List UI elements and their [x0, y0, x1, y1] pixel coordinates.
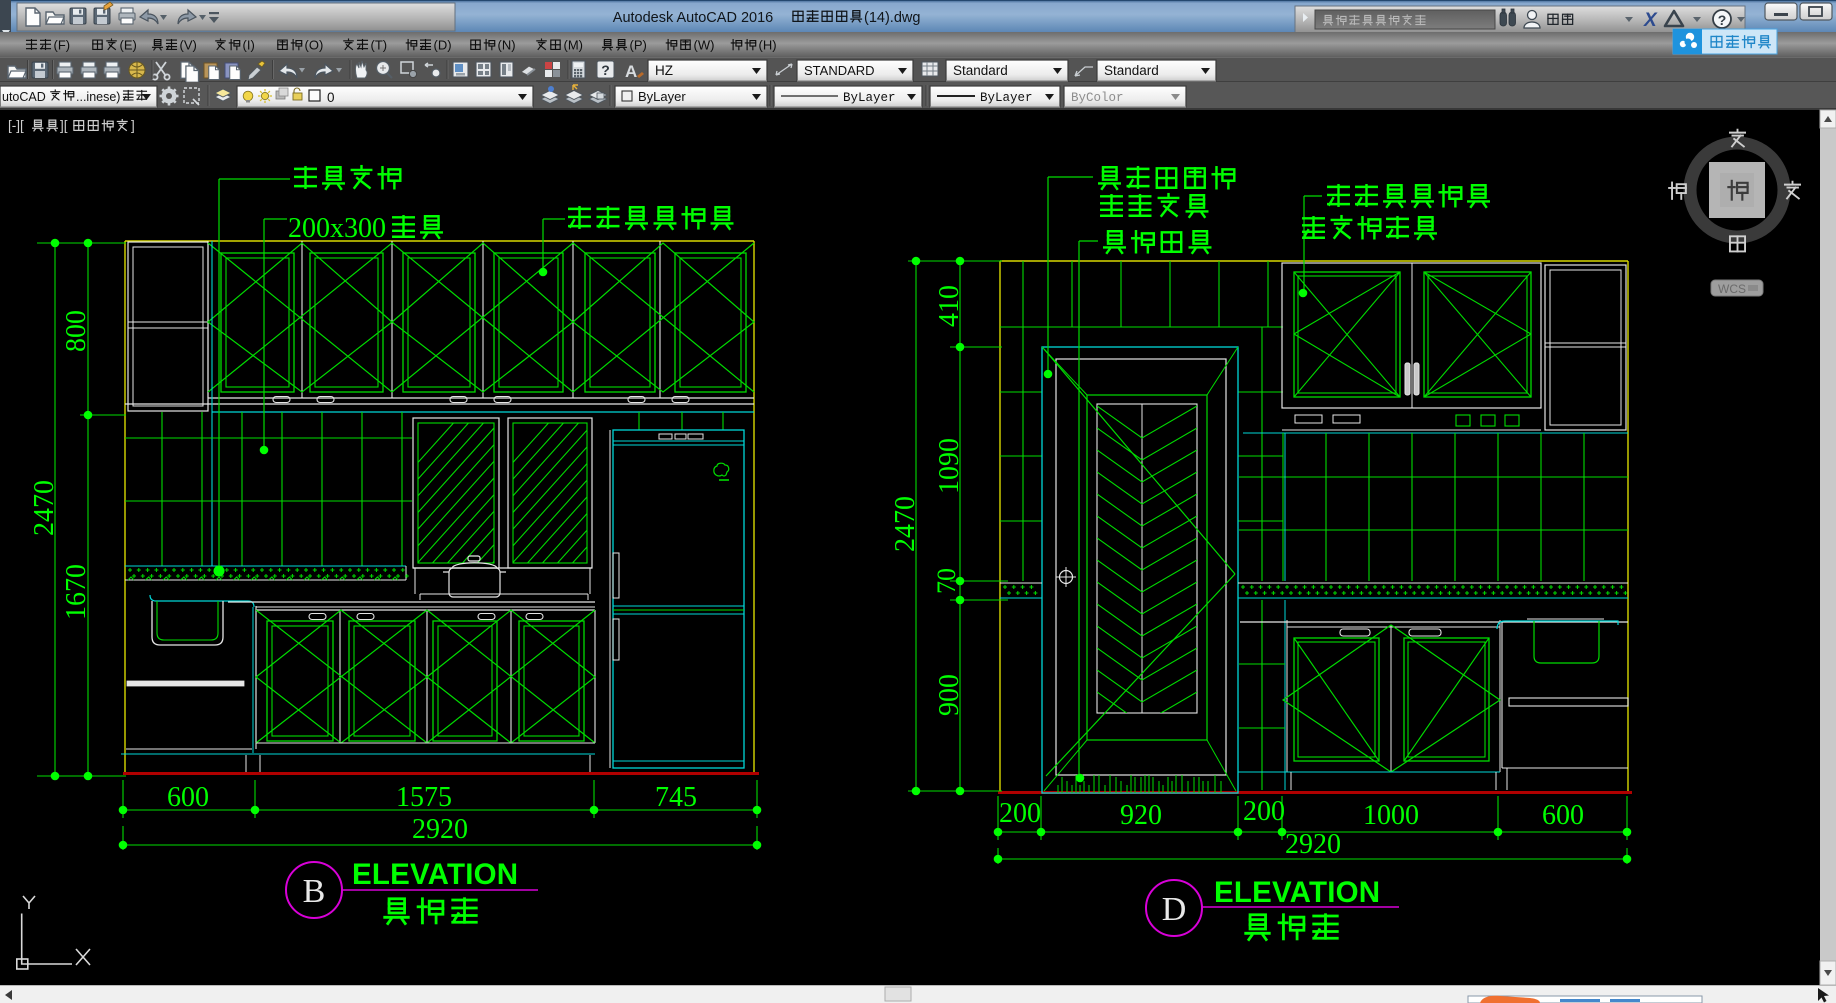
svg-text:2470: 2470	[890, 496, 921, 552]
svg-text:(H): (H)	[759, 38, 777, 53]
svg-text:2920: 2920	[412, 814, 468, 845]
svg-text:1575: 1575	[396, 782, 452, 813]
svg-text:D: D	[1162, 891, 1187, 928]
svg-text:ByLayer: ByLayer	[980, 91, 1033, 105]
svg-text:?: ?	[601, 62, 610, 78]
svg-text:ELEVATION: ELEVATION	[352, 858, 518, 891]
svg-text:]: ]	[131, 118, 135, 133]
svg-text:?: ?	[1718, 12, 1727, 28]
svg-text:(F): (F)	[54, 38, 71, 53]
svg-text:920: 920	[1120, 800, 1162, 831]
svg-text:][: ][	[60, 118, 68, 133]
svg-text:ByColor: ByColor	[1071, 91, 1124, 105]
svg-text:STANDARD: STANDARD	[804, 63, 875, 78]
svg-text:ELEVATION: ELEVATION	[1214, 876, 1380, 909]
svg-text:(P): (P)	[630, 38, 647, 53]
svg-text:(O): (O)	[305, 38, 324, 53]
svg-text:1670: 1670	[61, 564, 92, 620]
svg-text:utoCAD: utoCAD	[2, 90, 46, 104]
svg-text:1090: 1090	[934, 438, 965, 494]
svg-text:600: 600	[1542, 800, 1584, 831]
svg-text:2470: 2470	[29, 480, 60, 536]
svg-text:(W): (W)	[694, 38, 715, 53]
svg-text:...inese): ...inese)	[76, 90, 120, 104]
svg-text:A: A	[625, 62, 637, 81]
svg-text:(M): (M)	[564, 38, 584, 53]
svg-text:WCS: WCS	[1718, 282, 1746, 296]
svg-text:(14).dwg: (14).dwg	[864, 10, 920, 26]
svg-text:[-][: [-][	[8, 118, 24, 133]
svg-text:(I): (I)	[243, 38, 255, 53]
svg-text:(T): (T)	[371, 38, 388, 53]
svg-text:200: 200	[1243, 796, 1285, 827]
svg-text:745: 745	[655, 782, 697, 813]
svg-text:0: 0	[327, 90, 335, 105]
svg-text:410: 410	[934, 285, 965, 327]
svg-text:200x300: 200x300	[288, 213, 386, 244]
svg-text:(D): (D)	[434, 38, 452, 53]
svg-text:ByLayer: ByLayer	[638, 89, 686, 104]
svg-text:HZ: HZ	[655, 63, 673, 78]
svg-text:Standard: Standard	[1104, 63, 1159, 78]
svg-text:B: B	[303, 873, 326, 910]
svg-text:900: 900	[934, 674, 965, 716]
svg-text:X: X	[1643, 10, 1658, 31]
svg-text:(N): (N)	[498, 38, 516, 53]
svg-text:1000: 1000	[1363, 800, 1419, 831]
svg-text:2920: 2920	[1285, 829, 1341, 860]
svg-text:70: 70	[932, 568, 961, 594]
svg-text:600: 600	[167, 782, 209, 813]
svg-text:Standard: Standard	[953, 63, 1008, 78]
svg-text:(E): (E)	[120, 38, 137, 53]
svg-text:800: 800	[61, 310, 92, 352]
svg-text:(V): (V)	[180, 38, 197, 53]
svg-text:ByLayer: ByLayer	[843, 91, 896, 105]
svg-text:Autodesk AutoCAD 2016: Autodesk AutoCAD 2016	[613, 10, 773, 26]
svg-text:200: 200	[999, 798, 1041, 829]
